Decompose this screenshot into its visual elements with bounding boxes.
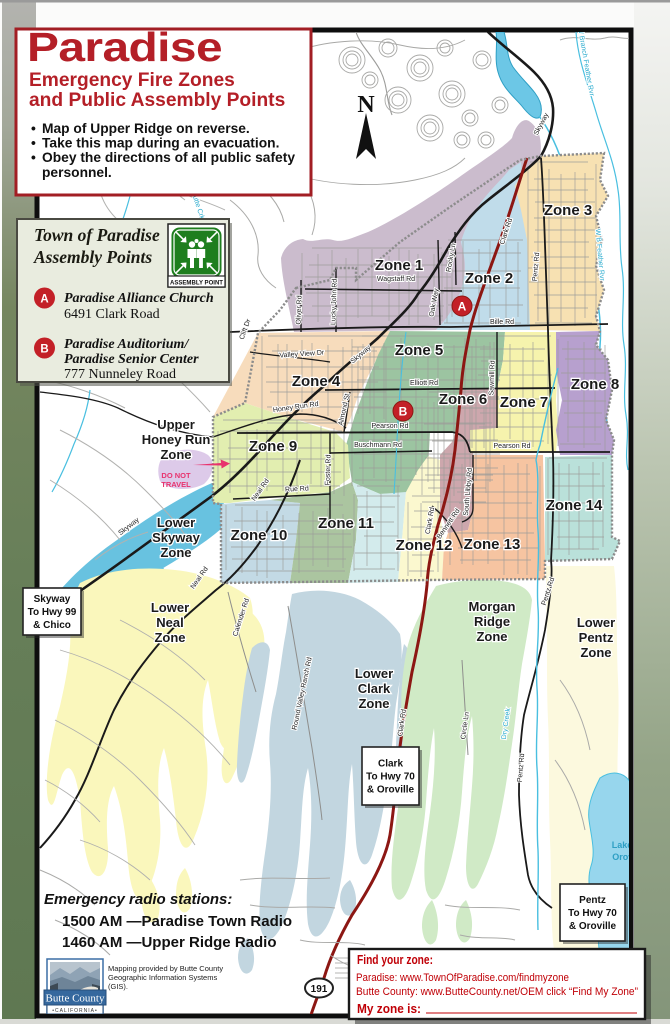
svg-text:Emergency radio stations:: Emergency radio stations: [44, 891, 232, 908]
svg-text:Find your zone:: Find your zone: [357, 953, 433, 967]
svg-text:Pentz: Pentz [579, 895, 606, 906]
svg-text:Lower: Lower [157, 515, 195, 530]
svg-text:Pentz: Pentz [579, 630, 614, 645]
svg-text:Rue Rd: Rue Rd [285, 485, 309, 493]
svg-text:A: A [40, 294, 48, 306]
svg-text:Zone 3: Zone 3 [544, 202, 592, 219]
svg-text:1460 AM —Upper Ridge Radio: 1460 AM —Upper Ridge Radio [62, 934, 276, 951]
svg-text:Paradise: www.TownOfParadise.c: Paradise: www.TownOfParadise.com/findmyz… [356, 972, 569, 984]
svg-text:Sawmill Rd: Sawmill Rd [488, 360, 496, 395]
svg-text:Zone 14: Zone 14 [546, 497, 603, 514]
svg-text:777 Nunneley Road: 777 Nunneley Road [64, 367, 176, 382]
svg-text:Wagstaff Rd: Wagstaff Rd [377, 276, 415, 283]
svg-text:Town of Paradise: Town of Paradise [34, 225, 160, 245]
svg-text:DO NOT: DO NOT [161, 471, 191, 480]
svg-text:Lower: Lower [151, 600, 189, 615]
svg-text:Zone 6: Zone 6 [439, 391, 487, 408]
svg-text:Honey Run: Honey Run [142, 432, 211, 447]
svg-text:Zone 7: Zone 7 [500, 394, 548, 411]
svg-text:To Hwy 70: To Hwy 70 [568, 908, 617, 919]
svg-text:Zone: Zone [358, 696, 389, 711]
svg-text:Take this map during an evacua: Take this map during an evacuation. [42, 136, 279, 151]
svg-text:Zone: Zone [476, 629, 507, 644]
svg-text:(GIS).: (GIS). [108, 982, 128, 991]
svg-text:Assembly Points: Assembly Points [33, 247, 152, 267]
svg-text:Zone 10: Zone 10 [231, 527, 288, 544]
svg-text:Zone 13: Zone 13 [464, 536, 521, 553]
svg-text:Morgan: Morgan [469, 599, 516, 614]
svg-text:Emergency Fire Zones: Emergency Fire Zones [29, 70, 235, 91]
svg-text:Zone 1: Zone 1 [375, 257, 423, 274]
svg-text:Zone 11: Zone 11 [318, 515, 374, 532]
svg-text:To Hwy 99: To Hwy 99 [28, 607, 77, 618]
svg-text:B: B [40, 344, 48, 356]
svg-text:Elliott Rd: Elliott Rd [410, 380, 438, 387]
svg-text:Pearson Rd: Pearson Rd [494, 443, 531, 450]
svg-text:Ridge: Ridge [474, 614, 510, 629]
svg-text:Obey the directions of all pub: Obey the directions of all public safety [42, 150, 295, 165]
svg-text:ASSEMBLY POINT: ASSEMBLY POINT [170, 280, 224, 287]
svg-text:Clark: Clark [358, 681, 391, 696]
svg-text:My zone is:: My zone is: [357, 1002, 421, 1016]
svg-text:Map of Upper Ridge on reverse.: Map of Upper Ridge on reverse. [42, 121, 250, 136]
svg-text:Paradise Auditorium/: Paradise Auditorium/ [64, 337, 189, 352]
svg-text:Foster Rd: Foster Rd [324, 454, 332, 485]
svg-text:191: 191 [311, 984, 328, 995]
svg-text:Butte County: Butte County [46, 993, 105, 1005]
svg-text:Skyway: Skyway [34, 594, 71, 605]
svg-text:Paradise Alliance Church: Paradise Alliance Church [64, 291, 214, 306]
svg-text:& Oroville: & Oroville [367, 785, 415, 796]
svg-text:To Hwy 70: To Hwy 70 [366, 772, 415, 783]
svg-text:Zone 9: Zone 9 [249, 438, 297, 455]
svg-text:•: • [31, 150, 36, 165]
svg-text:personnel.: personnel. [42, 165, 112, 180]
svg-text:Lower: Lower [355, 666, 393, 681]
svg-text:Butte County: www.ButteCounty.: Butte County: www.ButteCounty.net/OEM cl… [356, 986, 638, 998]
svg-text:Oliver Rd: Oliver Rd [295, 295, 303, 325]
svg-text:Lower: Lower [577, 615, 615, 630]
svg-text:Pearson Rd: Pearson Rd [372, 423, 409, 430]
svg-text:•: • [31, 136, 36, 151]
svg-text:•CALIFORNIA•: •CALIFORNIA• [52, 1008, 98, 1014]
svg-text:Zone 12: Zone 12 [396, 537, 453, 554]
svg-text:TRAVEL: TRAVEL [161, 480, 191, 489]
svg-text:Zone: Zone [580, 645, 611, 660]
svg-text:Zone 5: Zone 5 [395, 342, 443, 359]
svg-text:Zone 4: Zone 4 [292, 373, 341, 390]
svg-text:Upper: Upper [157, 417, 195, 432]
svg-text:Zone 2: Zone 2 [465, 270, 513, 287]
svg-text:Zone: Zone [154, 630, 185, 645]
svg-text:B: B [399, 405, 408, 419]
svg-text:Clark: Clark [378, 759, 403, 770]
svg-text:Geographic Information Systems: Geographic Information Systems [108, 973, 217, 982]
svg-text:•: • [31, 121, 36, 136]
svg-text:Zone: Zone [160, 545, 191, 560]
svg-text:1500 AM —Paradise Town Radio: 1500 AM —Paradise Town Radio [62, 913, 292, 930]
svg-text:and Public Assembly Points: and Public Assembly Points [29, 90, 285, 111]
svg-text:& Oroville: & Oroville [569, 921, 617, 932]
svg-text:Paradise Senior Center: Paradise Senior Center [64, 352, 199, 367]
svg-text:Neal: Neal [156, 615, 183, 630]
svg-text:6491 Clark Road: 6491 Clark Road [64, 307, 160, 322]
svg-text:Zone: Zone [160, 447, 191, 462]
svg-text:A: A [458, 300, 467, 314]
svg-text:Paradise: Paradise [27, 24, 222, 70]
svg-text:Mapping provided by Butte Coun: Mapping provided by Butte County [108, 964, 223, 973]
svg-text:N: N [357, 92, 375, 118]
svg-text:Skyway: Skyway [152, 530, 200, 545]
svg-text:Buschmann Rd: Buschmann Rd [354, 442, 402, 449]
svg-text:Zone 8: Zone 8 [571, 376, 619, 393]
svg-text:& Chico: & Chico [33, 620, 71, 631]
svg-text:Bille Rd: Bille Rd [490, 319, 514, 326]
